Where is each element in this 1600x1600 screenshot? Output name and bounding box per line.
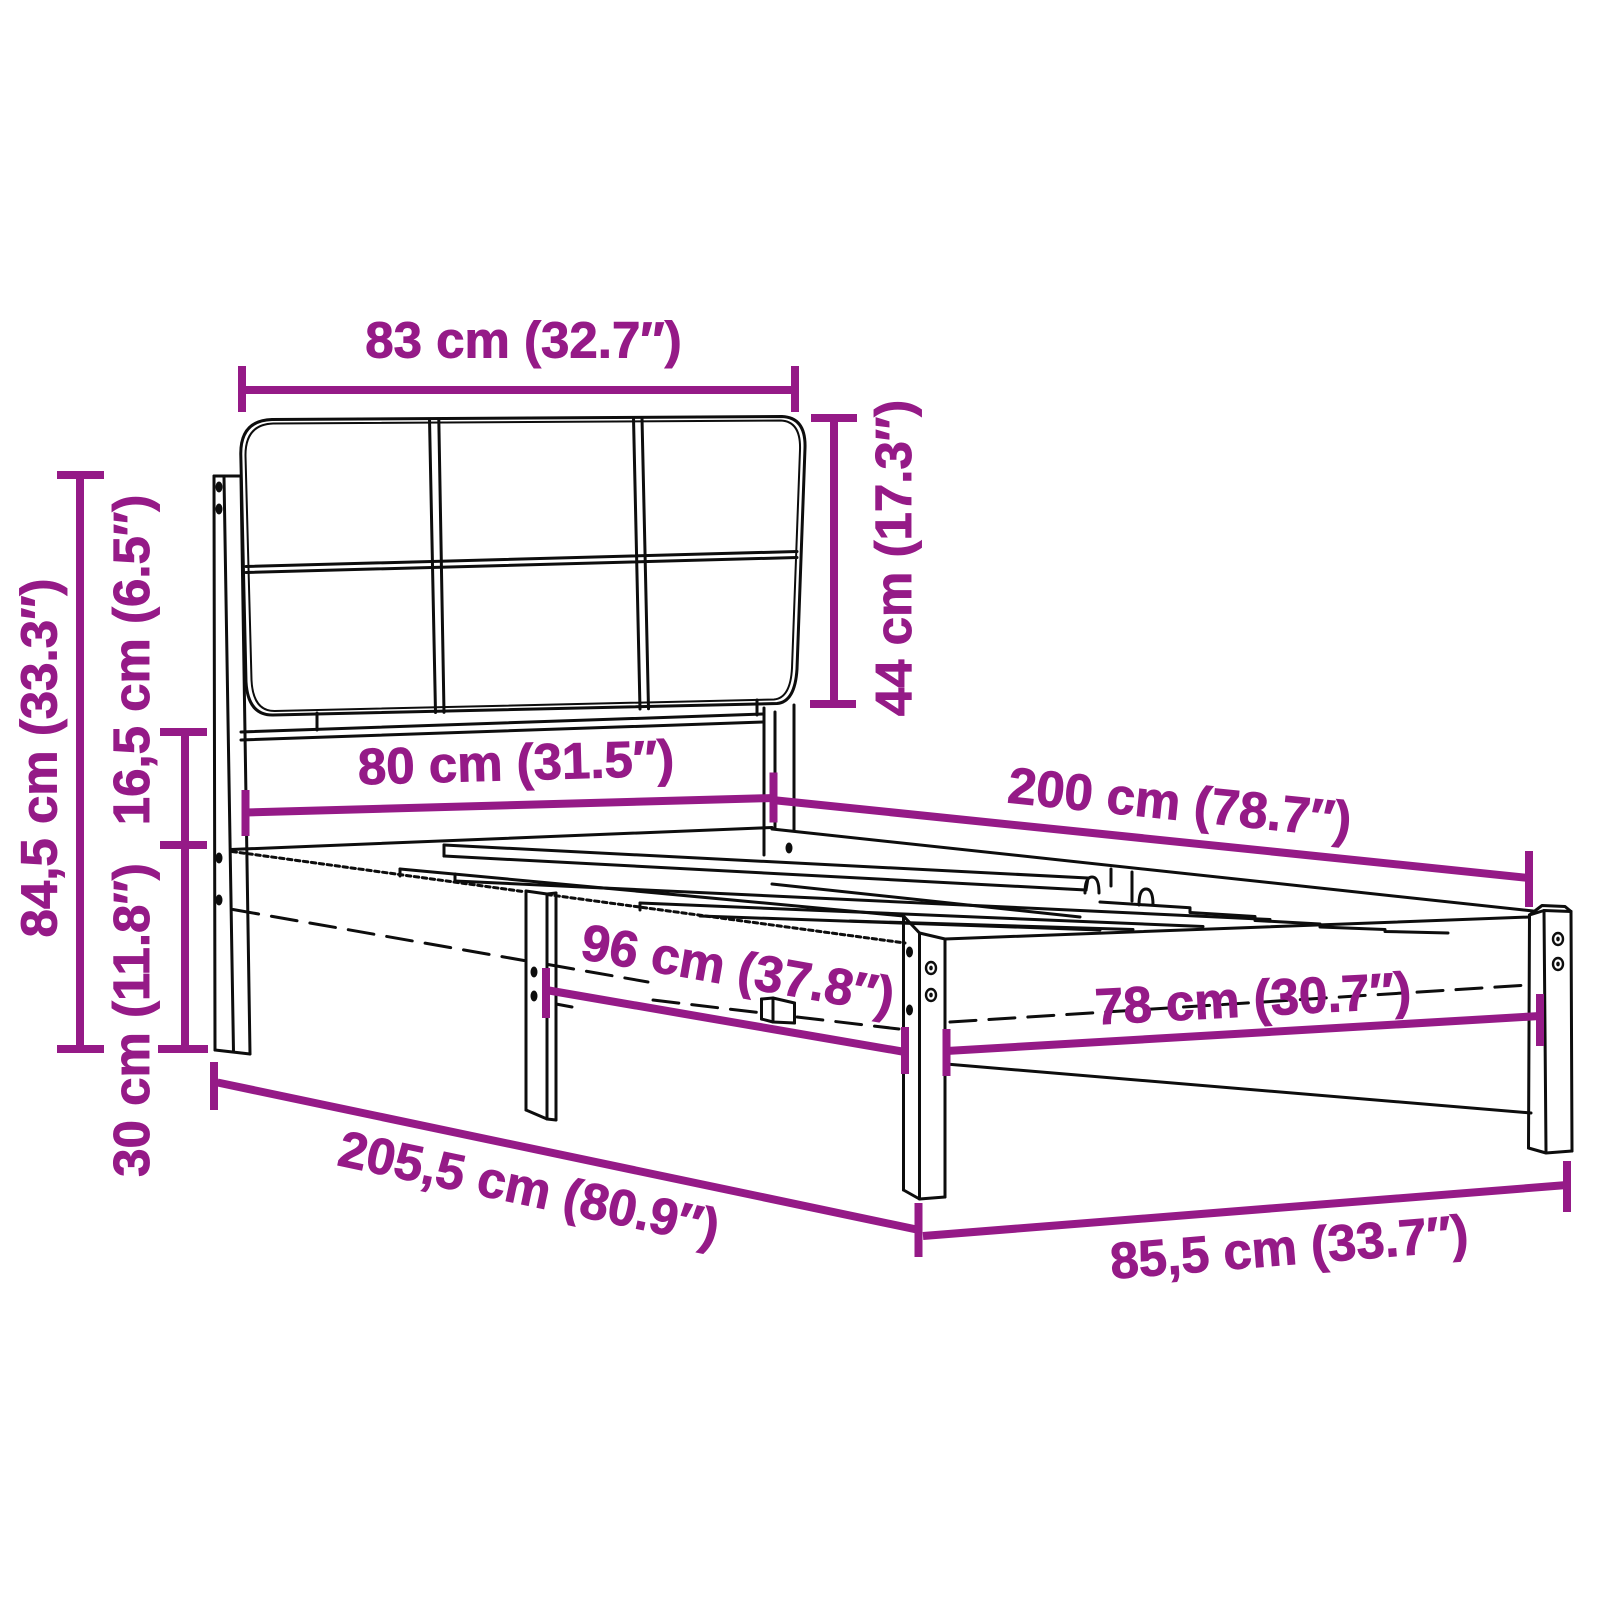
svg-text:80 cm (31.5″): 80 cm (31.5″) [357, 730, 675, 796]
svg-text:83 cm (32.7″): 83 cm (32.7″) [365, 312, 681, 369]
svg-text:16,5 cm (6.5″): 16,5 cm (6.5″) [103, 495, 160, 826]
svg-text:44 cm (17.3″): 44 cm (17.3″) [865, 400, 922, 716]
svg-text:84,5 cm (33.3″): 84,5 cm (33.3″) [11, 579, 68, 938]
svg-text:30 cm (11.8″): 30 cm (11.8″) [103, 863, 160, 1177]
